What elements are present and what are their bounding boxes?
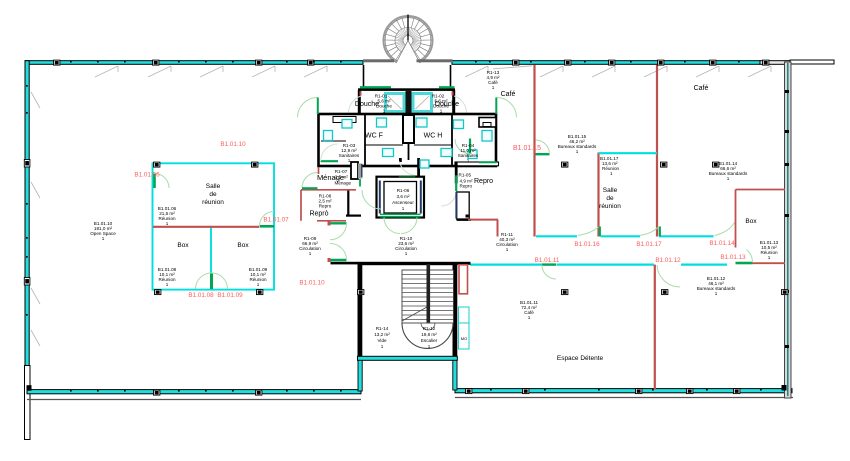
- svg-text:1: 1: [576, 149, 579, 154]
- svg-text:réunion: réunion: [202, 199, 224, 206]
- svg-text:R1-12: R1-12: [423, 326, 436, 331]
- svg-text:Reprò: Reprò: [309, 211, 328, 218]
- svg-text:2,5 m²: 2,5 m²: [335, 175, 348, 180]
- svg-text:1: 1: [166, 282, 169, 287]
- svg-text:Ascenseur: Ascenseur: [392, 200, 414, 205]
- svg-text:B1.01.14: B1.01.14: [709, 240, 735, 247]
- svg-text:1: 1: [727, 176, 730, 181]
- svg-text:WC H: WC H: [424, 133, 443, 140]
- svg-text:1: 1: [492, 85, 495, 90]
- svg-text:1: 1: [440, 109, 443, 114]
- svg-text:Espace Détente: Espace Détente: [557, 355, 604, 362]
- svg-text:19,8 m²: 19,8 m²: [421, 332, 437, 337]
- svg-text:réunion: réunion: [599, 203, 621, 210]
- svg-text:Box: Box: [177, 242, 189, 249]
- svg-text:Ménage: Ménage: [334, 181, 351, 186]
- svg-text:B1.01.15: B1.01.15: [513, 145, 541, 152]
- svg-text:B1.01.09: B1.01.09: [217, 292, 243, 299]
- svg-text:B1.01.13: B1.01.13: [720, 254, 746, 261]
- svg-text:1: 1: [102, 236, 105, 241]
- svg-text:3,6 m²: 3,6 m²: [396, 194, 409, 199]
- svg-text:1: 1: [309, 251, 312, 256]
- svg-text:Repro: Repro: [474, 178, 493, 185]
- svg-text:B1.01.06: B1.01.06: [134, 172, 160, 179]
- svg-text:B1.01.07: B1.01.07: [263, 217, 289, 224]
- svg-text:1: 1: [166, 221, 169, 226]
- svg-text:de: de: [606, 195, 614, 202]
- svg-text:1: 1: [381, 344, 384, 349]
- svg-text:B1.01.10: B1.01.10: [220, 141, 246, 148]
- svg-text:B1.01.10: B1.01.10: [299, 280, 325, 287]
- svg-text:B1.01.17: B1.01.17: [636, 241, 662, 248]
- svg-text:Box: Box: [745, 218, 757, 225]
- svg-text:Salle: Salle: [206, 183, 221, 190]
- svg-text:Douche: Douche: [355, 101, 379, 108]
- svg-text:1: 1: [383, 109, 386, 114]
- svg-text:13,2 m²: 13,2 m²: [374, 332, 390, 337]
- svg-text:Vide: Vide: [377, 338, 387, 343]
- svg-text:Douche: Douche: [435, 101, 459, 108]
- svg-text:1: 1: [610, 171, 613, 176]
- svg-text:1: 1: [467, 158, 470, 163]
- svg-text:1: 1: [257, 282, 260, 287]
- svg-text:R1-06: R1-06: [397, 188, 410, 193]
- svg-text:1: 1: [428, 344, 431, 349]
- svg-text:Café: Café: [501, 91, 516, 98]
- svg-text:1: 1: [715, 291, 718, 296]
- svg-text:WC F: WC F: [365, 133, 383, 140]
- svg-text:R1-05: R1-05: [459, 173, 472, 178]
- svg-text:B1.01.08: B1.01.08: [188, 292, 214, 299]
- svg-text:Repro: Repro: [460, 184, 473, 189]
- svg-text:B1.01.11: B1.01.11: [535, 257, 560, 264]
- svg-text:1: 1: [528, 315, 531, 320]
- svg-text:Escalier: Escalier: [421, 338, 438, 343]
- svg-text:1: 1: [402, 206, 405, 211]
- svg-text:B1.01.16: B1.01.16: [574, 241, 600, 248]
- svg-text:Box: Box: [237, 242, 249, 249]
- svg-text:1: 1: [348, 158, 351, 163]
- svg-text:Café: Café: [694, 85, 709, 92]
- svg-text:R1-14: R1-14: [376, 326, 389, 331]
- svg-text:Salle: Salle: [603, 187, 618, 194]
- svg-text:1: 1: [405, 251, 408, 256]
- svg-text:1: 1: [768, 255, 771, 260]
- svg-text:1: 1: [506, 247, 509, 252]
- svg-text:MO: MO: [461, 336, 467, 341]
- svg-text:B1.01.12: B1.01.12: [655, 257, 681, 264]
- svg-text:Repro: Repro: [319, 204, 332, 209]
- svg-text:de: de: [209, 191, 217, 198]
